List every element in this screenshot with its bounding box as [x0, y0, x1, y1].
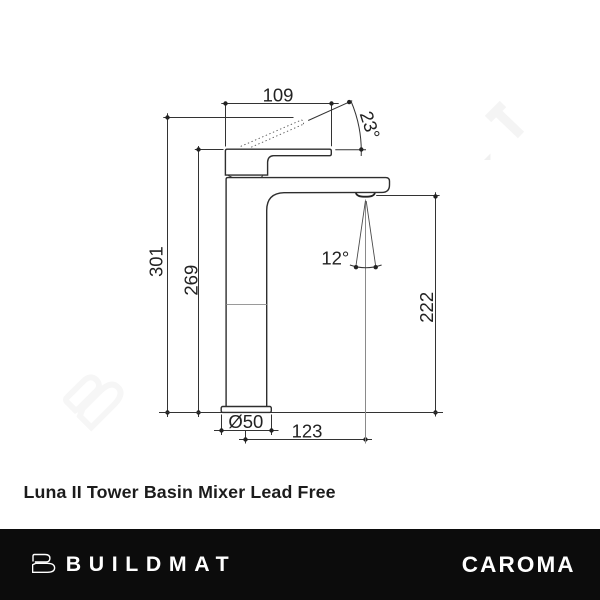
svg-text:12°: 12°	[321, 248, 349, 269]
svg-text:269: 269	[181, 265, 202, 296]
svg-text:Ø50: Ø50	[228, 411, 263, 432]
svg-text:222: 222	[416, 292, 437, 323]
svg-text:123: 123	[292, 420, 323, 441]
svg-text:109: 109	[263, 84, 294, 105]
svg-text:301: 301	[146, 246, 167, 277]
